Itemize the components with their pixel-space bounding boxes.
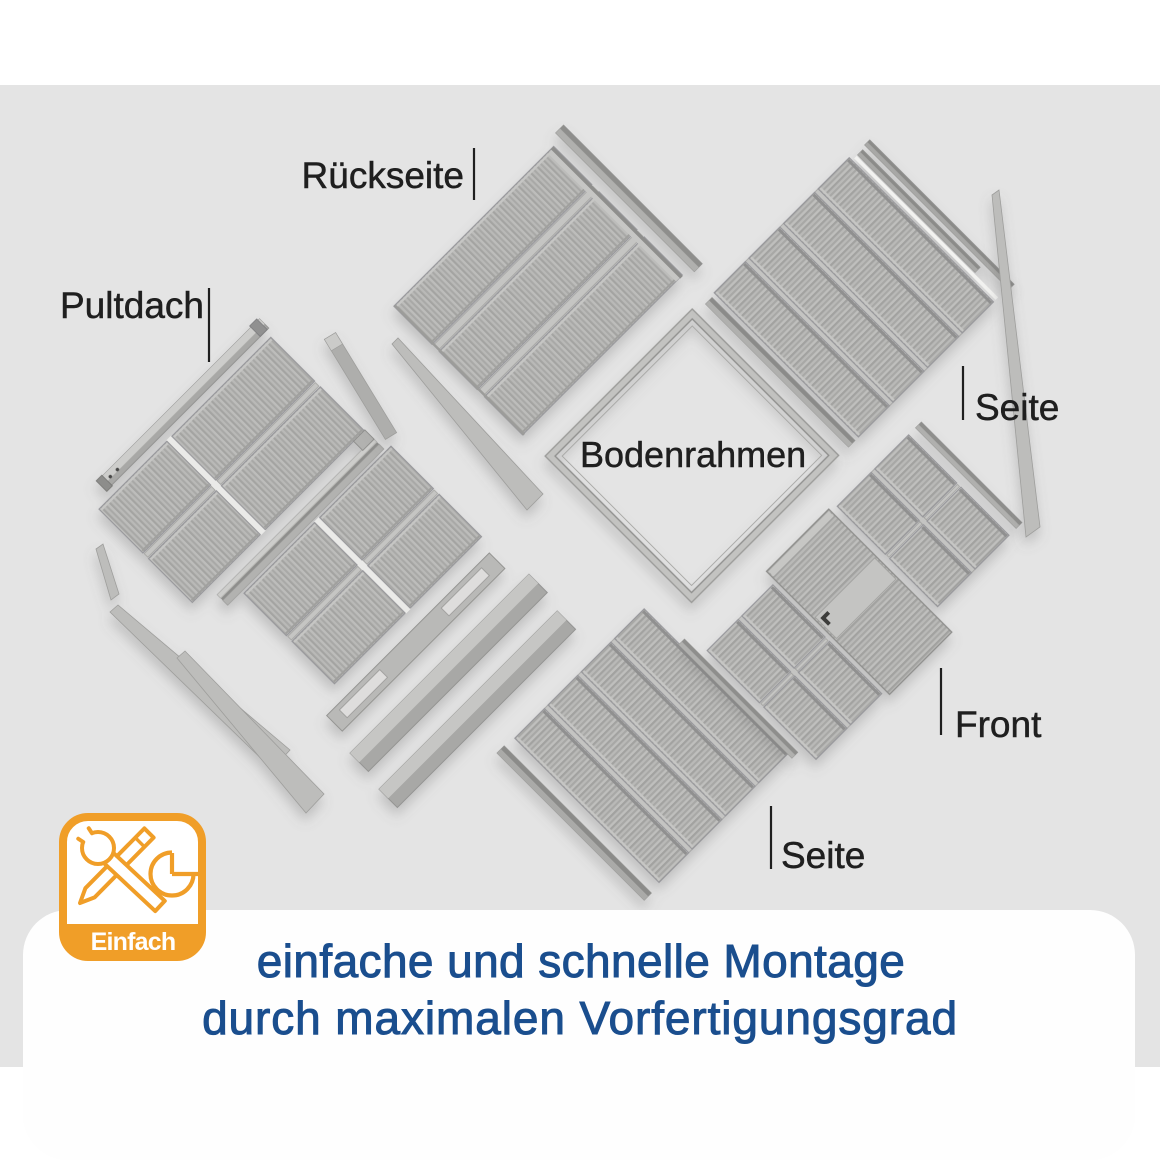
svg-text:Seite: Seite xyxy=(781,835,865,876)
svg-text:Pultdach: Pultdach xyxy=(60,285,204,326)
svg-text:Rückseite: Rückseite xyxy=(302,155,464,196)
svg-text:Einfach: Einfach xyxy=(91,928,176,956)
svg-text:durch maximalen Vorfertigungsg: durch maximalen Vorfertigungsgrad xyxy=(202,992,958,1044)
svg-text:Front: Front xyxy=(955,704,1042,745)
svg-text:Bodenrahmen: Bodenrahmen xyxy=(580,434,806,475)
svg-text:Seite: Seite xyxy=(975,387,1059,428)
svg-text:einfache und schnelle Montage: einfache und schnelle Montage xyxy=(257,935,905,987)
